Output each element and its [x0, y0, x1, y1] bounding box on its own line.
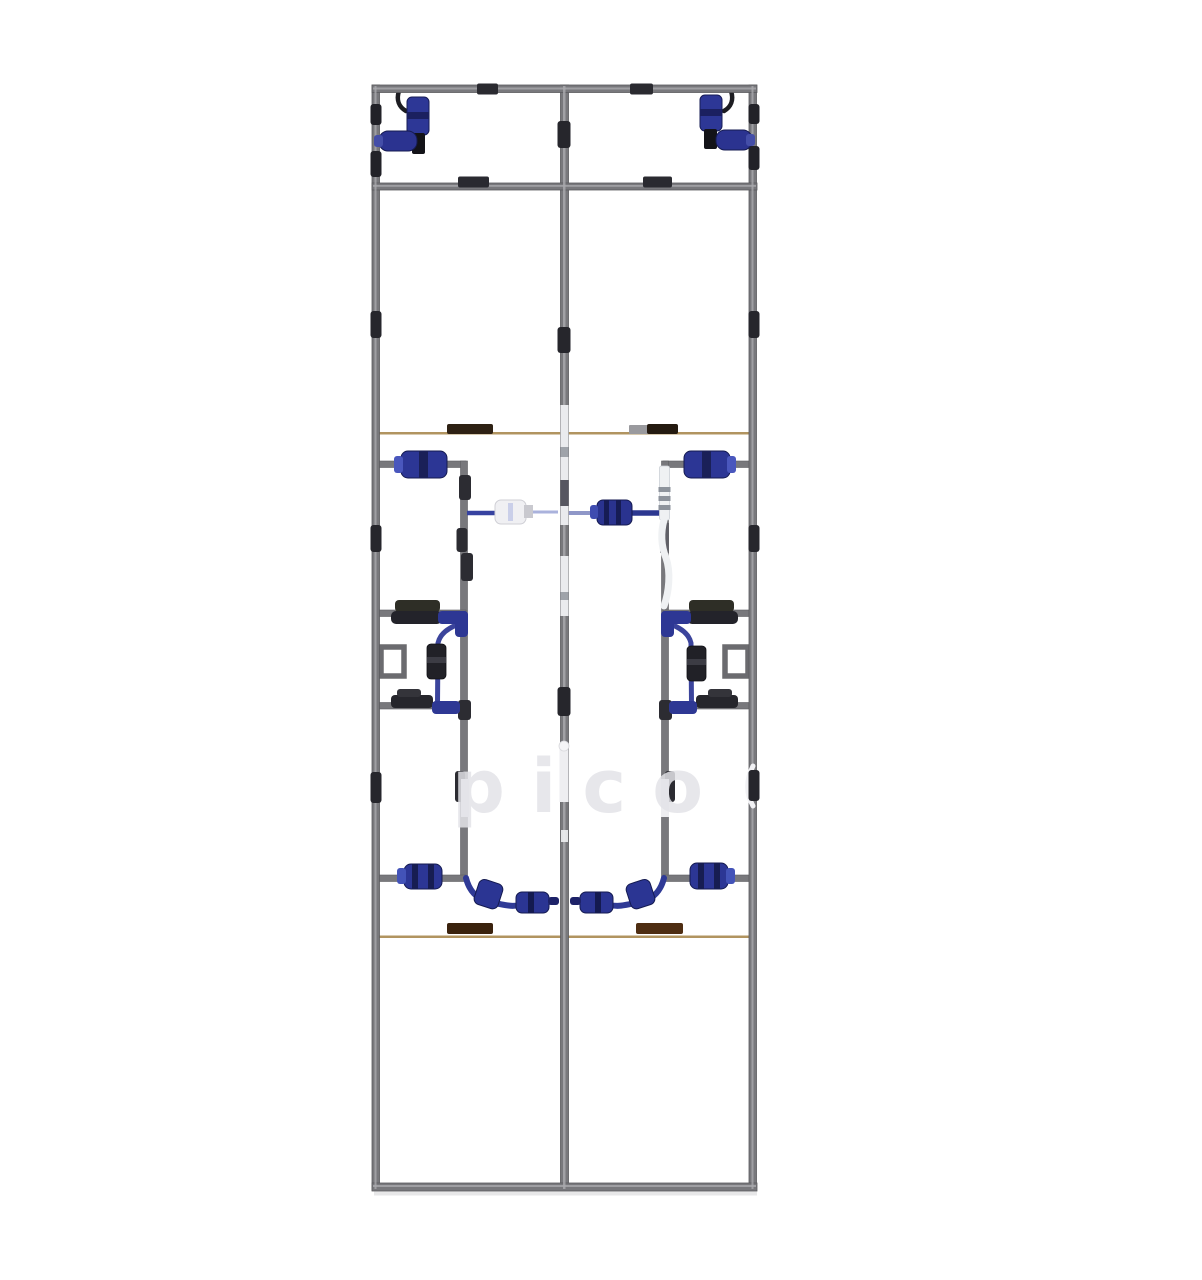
connector-branch-right-band2 — [616, 500, 621, 525]
trim-block-upper-left — [447, 424, 493, 434]
clip-center-2 — [558, 327, 571, 353]
clip-inner-left-a — [459, 475, 471, 500]
connector-top-right-cap — [746, 134, 755, 146]
frame-bottom-highlight — [373, 1185, 756, 1187]
elbow-right-blue-v — [661, 611, 674, 637]
clip-frame-right-5 — [749, 770, 760, 801]
frame-top-highlight — [373, 88, 756, 90]
scene-svg: pico — [0, 0, 1202, 1280]
connector-branch-right-body — [597, 500, 632, 525]
clip-inner-left-b — [457, 528, 468, 552]
frame-right-highlight — [752, 86, 754, 1189]
sleeve-center-upper — [561, 405, 569, 525]
clip-frame-right-4 — [749, 525, 760, 552]
plug-top-right-tip — [704, 129, 717, 149]
frame-divider-highlight — [373, 185, 756, 187]
photo-canvas: pico — [0, 0, 1202, 1280]
clip-frame-right-1 — [749, 104, 760, 124]
sleeve-center-streak2 — [561, 480, 569, 506]
plug-cable-left-band — [427, 657, 446, 663]
sleeve-right-upper — [660, 466, 670, 520]
connector-mid-top-left-band — [419, 451, 428, 478]
frame-bottom-shadow — [374, 1192, 757, 1196]
plug-top-right-band — [700, 109, 722, 116]
connector-mid-top-right-cap — [727, 456, 736, 473]
clip-frame-right-2 — [749, 146, 760, 170]
sleeve-center-mid-streak — [561, 592, 569, 600]
connector-bottom-left-cap — [397, 868, 406, 884]
connector-lowmid-left-dark-b — [391, 611, 442, 624]
connector-mid-top-left-cap — [394, 456, 403, 473]
clip-center-3 — [558, 687, 571, 716]
connector-branch-left-streak — [508, 503, 513, 521]
clip-frame-left-3 — [371, 311, 382, 338]
connector-top-left — [379, 131, 417, 151]
clip-center-1 — [558, 121, 571, 148]
clip-inner-left-c — [461, 553, 473, 581]
plug-cable-right-band — [687, 659, 706, 665]
clip-frame-right-3 — [749, 311, 760, 338]
trim-block-upper-right-dark — [647, 424, 678, 434]
connector-bottom-left-band2 — [428, 864, 434, 889]
connector-lowmid-right-dark-a — [689, 600, 734, 612]
connector-s-left-2-band — [528, 892, 534, 913]
frame-left-highlight — [375, 86, 377, 1189]
elbow-left-blue-v — [455, 611, 468, 637]
background — [0, 0, 1202, 1280]
sleeve-center-mid — [561, 556, 569, 616]
clip-frame-left-1 — [371, 104, 382, 125]
trim-block-lower-right — [636, 923, 683, 934]
trim-block-lower-left — [447, 923, 493, 934]
connector-bottom-right-cap — [726, 868, 735, 884]
clip-frame-left-5 — [371, 772, 382, 803]
connector-s-right-2-band — [595, 892, 601, 913]
connector-s-left-tip — [548, 897, 559, 905]
connector-branch-right-cap — [590, 505, 598, 519]
connector-bottom-right-band2 — [714, 863, 720, 889]
clip-rail-top-left — [477, 84, 498, 95]
connector-lowmid-left-dark-a — [395, 600, 440, 612]
sleeve-right-band2 — [659, 496, 671, 501]
connector-bottom-left-band1 — [412, 864, 418, 889]
connector-lower-right-dark-top — [708, 689, 732, 697]
sleeve-center-low2 — [561, 830, 568, 842]
connector-lower-left-blue — [432, 701, 460, 714]
sleeve-right-band1 — [659, 487, 671, 492]
clip-frame-left-4 — [371, 525, 382, 552]
frame-center-highlight — [563, 86, 566, 1189]
connector-bottom-right-band1 — [698, 863, 704, 889]
connector-branch-right-band1 — [604, 500, 609, 525]
connector-lower-right-blue — [669, 701, 697, 714]
connector-lowmid-right-dark-b — [687, 611, 738, 624]
connector-lower-left-dark-top — [397, 689, 421, 697]
clip-rail-divider-right — [643, 177, 672, 188]
sleeve-right-band3 — [659, 505, 671, 510]
connector-bottom-right-body — [690, 863, 728, 889]
trim-block-upper-right-gray — [629, 425, 649, 434]
clip-rail-divider-left — [458, 177, 489, 188]
connector-bottom-left-body — [404, 864, 442, 889]
sleeve-center-streak1 — [561, 447, 569, 457]
connector-mid-top-right-band — [702, 451, 711, 478]
clip-rail-top-right — [630, 84, 653, 95]
connector-branch-left-white-tip — [524, 505, 533, 518]
plug-top-left-band — [407, 112, 429, 119]
watermark-text: pico — [452, 744, 729, 830]
clip-frame-left-2 — [371, 151, 382, 177]
connector-top-left-cap — [374, 135, 383, 147]
connector-s-right-tip — [570, 897, 581, 905]
